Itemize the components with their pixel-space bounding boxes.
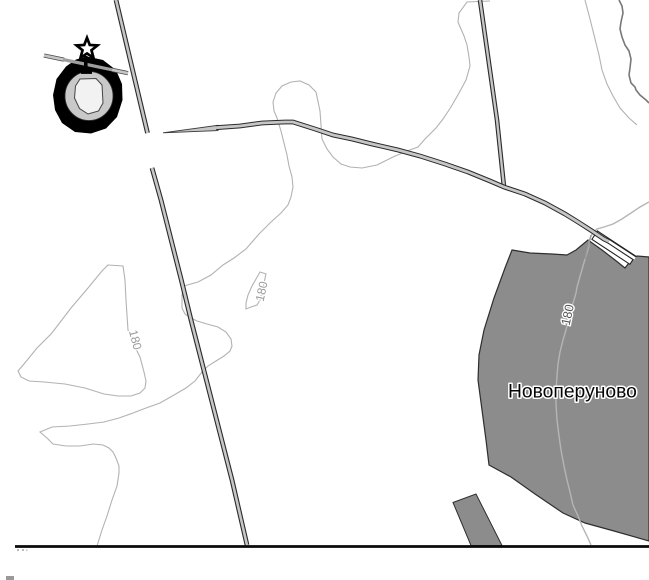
svg-text:Новоперуново: Новоперуново bbox=[508, 382, 637, 403]
